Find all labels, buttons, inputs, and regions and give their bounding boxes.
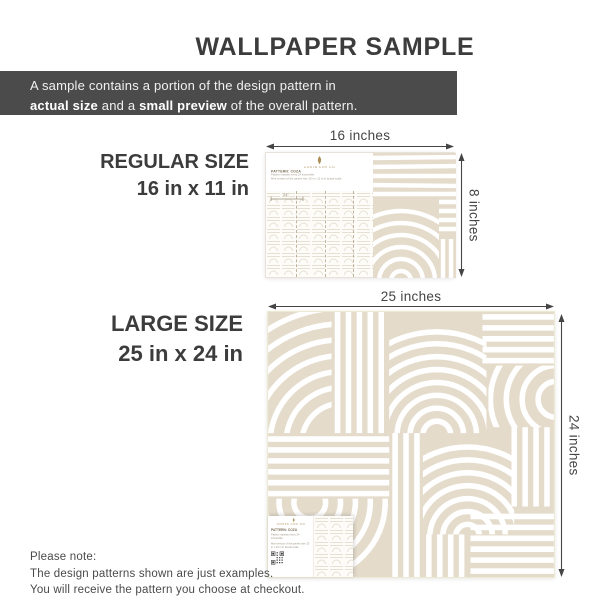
repeat-width-marker: 24": [270, 192, 304, 201]
footer-note: Please note: The design patterns shown a…: [30, 549, 305, 599]
banner-end-text: of the overall pattern.: [227, 98, 358, 113]
regular-mini-preview: 24": [266, 191, 373, 277]
regular-sample-label-area: COSTA COV CO PATTERN: COZA Pattern repea…: [266, 153, 373, 277]
footer-note-line-2: You will receive the pattern you choose …: [30, 582, 305, 599]
banner-bold-small-preview: small preview: [139, 98, 227, 113]
fold-line: [353, 191, 354, 277]
brand-logo-icon: [315, 156, 324, 166]
description-banner: A sample contains a portion of the desig…: [0, 71, 457, 115]
banner-mid-text: and a: [98, 98, 139, 113]
fold-line: [296, 191, 297, 277]
large-width-arrow: [267, 302, 555, 311]
footer-note-line-1: The design patterns shown are just examp…: [30, 566, 305, 583]
banner-text-1: A sample contains a portion of the desig…: [30, 78, 336, 93]
large-sample-preview: COSTA COV CO PATTERN: COZA Pattern repea…: [267, 311, 555, 578]
banner-line-2: actual size and a small preview of the o…: [30, 96, 457, 116]
regular-sample-preview: COSTA COV CO PATTERN: COZA Pattern repea…: [265, 152, 455, 278]
pattern-info-line-2: Mini version of the panels size 16 in x …: [271, 177, 373, 181]
brand-name: COSTA COV CO: [290, 166, 349, 169]
brand-name: COSTA COV CO: [271, 523, 311, 526]
regular-size-dimensions: 16 in x 11 in: [100, 176, 249, 203]
regular-size-label: REGULAR SIZE 16 in x 11 in: [100, 149, 249, 203]
regular-size-title: REGULAR SIZE: [100, 149, 249, 176]
banner-bold-actual-size: actual size: [30, 98, 98, 113]
sample-meta-text: PATTERN: COZA Pattern repeats every 24 i…: [271, 170, 373, 181]
regular-width-label: 16 inches: [265, 128, 455, 143]
regular-height-label: 8 inches: [466, 152, 482, 278]
regular-actual-size-pattern: [373, 153, 456, 278]
large-size-dimensions: 25 in x 24 in: [111, 339, 243, 369]
regular-height-arrow: [457, 152, 466, 278]
footer-note-title: Please note:: [30, 549, 305, 566]
banner-line-1: A sample contains a portion of the desig…: [30, 76, 457, 96]
mini-preview-pattern: [266, 191, 373, 277]
svg-text:24": 24": [283, 192, 289, 197]
fold-line: [325, 191, 326, 277]
large-height-arrow: [557, 313, 566, 578]
large-height-label: 24 inches: [566, 313, 582, 578]
large-size-title: LARGE SIZE: [111, 309, 243, 339]
mini-preview-pattern: [314, 516, 353, 577]
pattern-name: PATTERN: COZA: [271, 529, 313, 533]
pattern-info-line-1: Pattern repeats every 24 inches/tile.: [271, 534, 310, 541]
regular-width-arrow: [265, 142, 455, 151]
page-title: WALLPAPER SAMPLE: [185, 33, 485, 62]
wallpaper-sample-infographic: WALLPAPER SAMPLE A sample contains a por…: [0, 0, 600, 600]
large-size-label: LARGE SIZE 25 in x 24 in: [111, 309, 243, 368]
card-mini-preview: [313, 516, 353, 577]
